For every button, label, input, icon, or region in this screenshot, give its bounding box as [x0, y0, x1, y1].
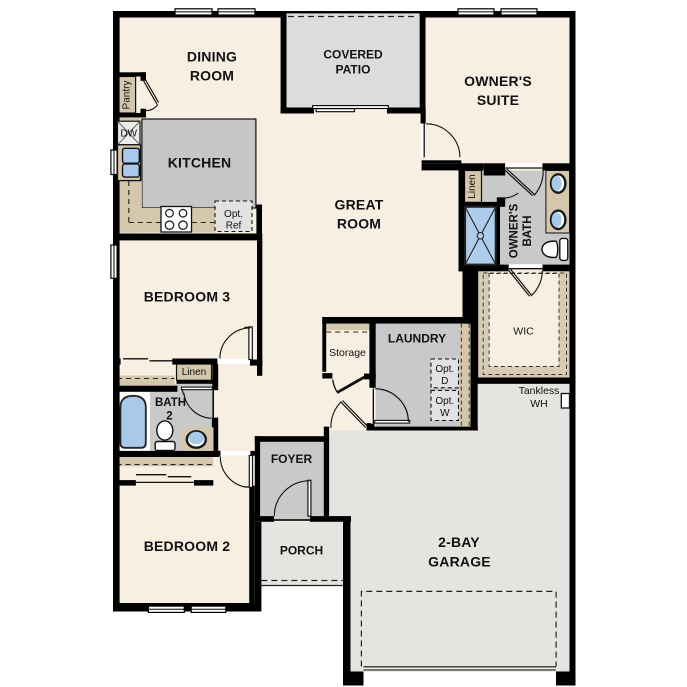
svg-text:Ref: Ref [226, 221, 242, 232]
svg-text:D: D [441, 376, 448, 387]
svg-text:PATIO: PATIO [336, 63, 371, 77]
svg-text:BEDROOM 3: BEDROOM 3 [144, 289, 231, 305]
svg-text:Opt.: Opt. [224, 209, 243, 220]
svg-text:WH: WH [530, 398, 548, 410]
svg-text:ROOM: ROOM [337, 216, 381, 232]
svg-text:Pantry: Pantry [122, 81, 133, 110]
svg-text:ROOM: ROOM [190, 68, 234, 84]
svg-text:2: 2 [166, 411, 172, 423]
svg-text:SUITE: SUITE [477, 92, 519, 108]
svg-text:BEDROOM 2: BEDROOM 2 [144, 538, 231, 554]
svg-text:DINING: DINING [187, 49, 237, 65]
svg-text:Opt.: Opt. [435, 396, 454, 407]
svg-text:KITCHEN: KITCHEN [168, 155, 232, 171]
svg-text:GREAT: GREAT [335, 197, 384, 213]
svg-text:W: W [440, 408, 450, 419]
svg-text:DW: DW [120, 129, 137, 140]
svg-text:Linen: Linen [467, 174, 478, 198]
svg-text:BATH: BATH [522, 215, 534, 246]
svg-text:LAUNDRY: LAUNDRY [388, 332, 446, 346]
svg-text:Storage: Storage [329, 347, 366, 359]
svg-text:Linen: Linen [182, 367, 206, 378]
svg-text:Tankless: Tankless [519, 385, 560, 397]
svg-text:WIC: WIC [513, 326, 534, 338]
svg-text:BATH: BATH [155, 397, 186, 409]
svg-text:OWNER'S: OWNER'S [509, 203, 521, 258]
svg-text:2-BAY: 2-BAY [438, 534, 480, 550]
svg-text:FOYER: FOYER [271, 452, 313, 466]
svg-text:PORCH: PORCH [280, 544, 323, 558]
svg-text:OWNER'S: OWNER'S [464, 73, 532, 89]
svg-text:GARAGE: GARAGE [428, 554, 491, 570]
svg-text:Opt.: Opt. [435, 364, 454, 375]
svg-text:COVERED: COVERED [323, 48, 383, 62]
